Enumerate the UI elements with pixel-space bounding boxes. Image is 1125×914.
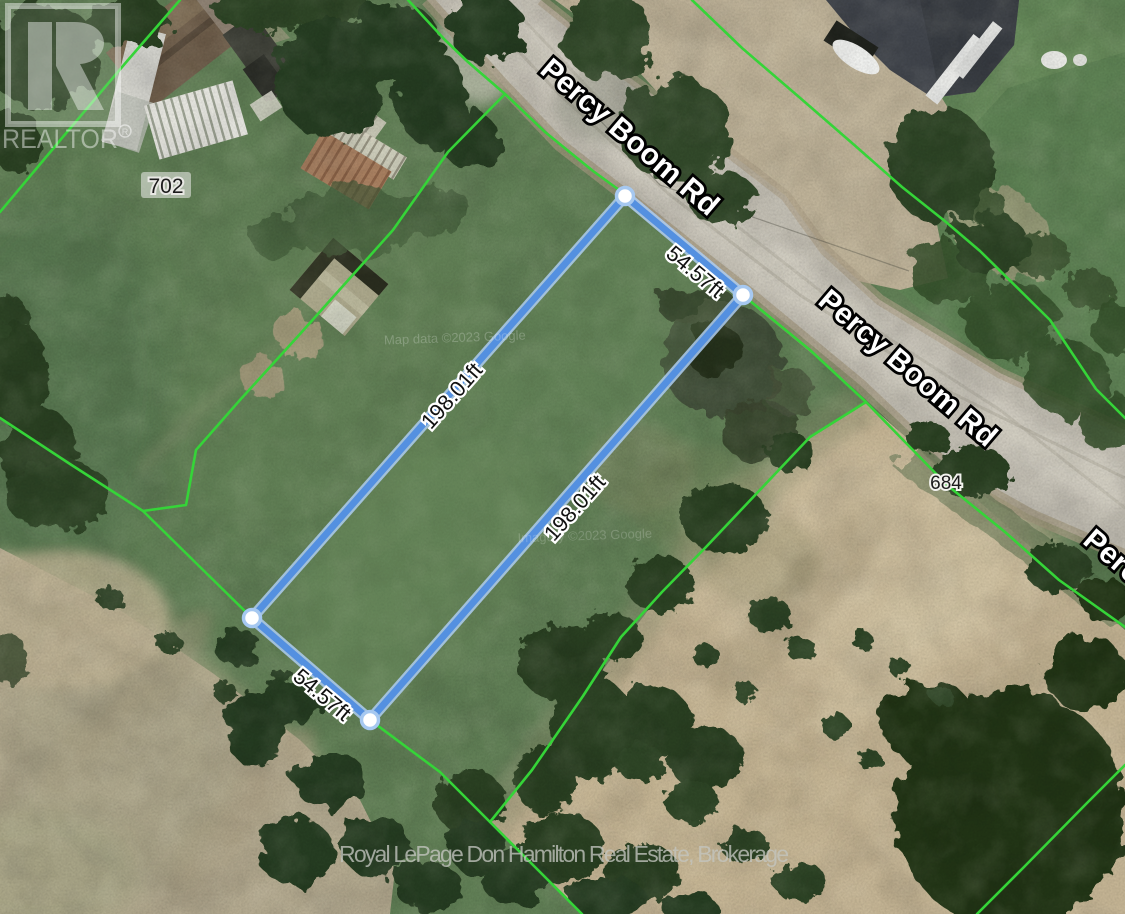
svg-text:702: 702 [148, 175, 183, 198]
svg-text:Royal LePage Don Hamilton Real: Royal LePage Don Hamilton Real Estate, B… [339, 841, 789, 867]
svg-text:R: R [122, 127, 129, 137]
svg-text:REALTOR: REALTOR [2, 124, 118, 154]
svg-text:684: 684 [930, 473, 962, 494]
